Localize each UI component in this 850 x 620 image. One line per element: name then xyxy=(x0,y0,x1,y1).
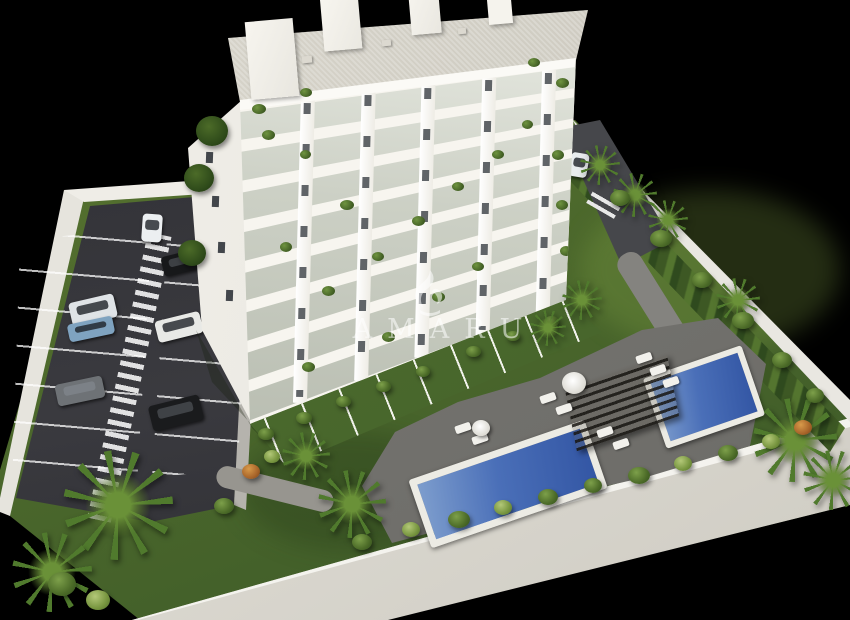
balcony-plant xyxy=(340,200,354,210)
terrace-hedge xyxy=(416,366,430,377)
balcony-plant xyxy=(280,242,292,252)
terrace-hedge xyxy=(258,428,274,440)
hedge-bush xyxy=(772,352,792,368)
palm-tree xyxy=(12,532,92,612)
penthouse-volume xyxy=(320,0,363,52)
garden-bush xyxy=(448,511,470,528)
garden-bush xyxy=(214,498,234,514)
balcony-plant xyxy=(412,216,425,226)
building-left-window xyxy=(218,242,225,253)
amaru-bird-logo xyxy=(406,268,450,316)
rooftop-ac-unit xyxy=(382,40,391,47)
roof-terrace-plant xyxy=(556,78,569,88)
balcony-plant xyxy=(522,120,533,129)
balcony-plant xyxy=(262,130,275,140)
orange-bush xyxy=(242,464,260,479)
roof-terrace-plant xyxy=(252,104,266,114)
parasol xyxy=(562,372,586,394)
facade-pilaster xyxy=(536,63,557,314)
car-white-top xyxy=(141,213,163,242)
garden-bush xyxy=(538,489,558,505)
balcony-plant xyxy=(552,150,564,160)
rooftop-ac-unit xyxy=(458,28,466,35)
parasol xyxy=(472,420,490,436)
garden-bush xyxy=(584,478,602,493)
building-left-window xyxy=(212,196,219,207)
garden-bush xyxy=(402,522,420,537)
terrace-hedge xyxy=(376,381,391,392)
penthouse-volume xyxy=(408,0,442,35)
penthouse-volume xyxy=(245,18,300,100)
balcony-plant xyxy=(472,262,484,271)
terrace-hedge xyxy=(466,346,481,357)
garden-bush xyxy=(628,467,650,484)
watermark-text: AMARU xyxy=(318,314,557,345)
garden-bush xyxy=(762,434,780,449)
bush xyxy=(86,590,110,610)
terrace-hedge xyxy=(296,412,312,424)
hedge-bush xyxy=(692,272,712,288)
roof-terrace-plant xyxy=(300,88,312,97)
palm-tree xyxy=(282,432,330,480)
tree xyxy=(184,164,214,192)
roof-terrace-plant xyxy=(528,58,540,67)
tree xyxy=(178,240,206,266)
hedge-bush xyxy=(610,190,630,206)
balcony-plant xyxy=(302,362,315,372)
palm-tree xyxy=(580,145,620,185)
orange-bush xyxy=(794,420,812,435)
hedge-bush xyxy=(732,312,754,329)
penthouse-volume xyxy=(487,0,513,25)
balcony-plant xyxy=(300,150,311,159)
balcony-plant xyxy=(556,200,568,210)
hedge-bush xyxy=(806,388,824,403)
balcony-plant xyxy=(492,150,504,159)
garden-bush xyxy=(264,450,280,463)
balcony-plant xyxy=(322,286,335,296)
balcony-plant xyxy=(452,182,464,191)
rooftop-ac-unit xyxy=(302,56,313,64)
garden-bush xyxy=(674,456,692,471)
garden-bush xyxy=(718,445,738,461)
garden-bush xyxy=(352,534,372,550)
palm-tree xyxy=(562,280,602,320)
building-left-window xyxy=(206,152,213,163)
building-left-window xyxy=(226,290,233,301)
balcony-plant xyxy=(372,252,384,261)
garden-bush xyxy=(494,500,512,515)
palm-tree xyxy=(318,470,386,538)
hedge-bush xyxy=(650,230,672,247)
bush xyxy=(48,572,76,596)
tree xyxy=(196,116,228,146)
terrace-hedge xyxy=(336,396,351,407)
architectural-render: AMARU xyxy=(0,0,850,620)
